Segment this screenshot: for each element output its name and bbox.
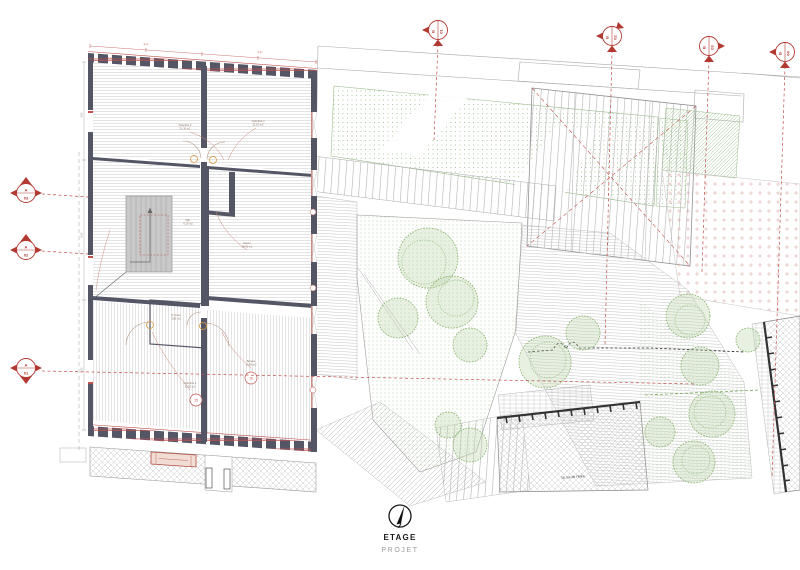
tree: [566, 316, 600, 350]
svg-text:01: 01: [439, 29, 444, 34]
svg-text:B: B: [778, 52, 783, 55]
room-tag: 15: [194, 399, 198, 403]
skylight: [151, 452, 196, 467]
tree: [378, 298, 418, 338]
section-marker-b03: B 03: [700, 37, 726, 63]
svg-text:03: 03: [24, 196, 29, 201]
svg-text:21,30 m2: 21,30 m2: [180, 127, 191, 131]
room-floor-ch2: [92, 62, 200, 163]
chimney: [224, 469, 230, 489]
section-marker-a03: A 03: [10, 177, 42, 203]
annex-building: [90, 447, 316, 492]
svg-text:19,90 m2: 19,90 m2: [246, 363, 257, 367]
room-label: Chambre 3: [252, 119, 265, 123]
room-label: Chambre 2: [179, 123, 192, 127]
site-plan: 16 rue de l'Italie: [311, 46, 800, 506]
section-marker-b04: B 04: [769, 43, 795, 69]
tree: [426, 276, 478, 328]
svg-text:01: 01: [24, 371, 29, 376]
room-label: Dgt.: [186, 218, 191, 222]
svg-text:B: B: [605, 36, 610, 39]
neighbor-green-strip: [662, 108, 740, 178]
room-tag: 16: [249, 377, 253, 381]
svg-text:B: B: [702, 46, 707, 49]
north-arrow-icon: [389, 505, 411, 528]
tree: [681, 347, 719, 385]
svg-text:B: B: [431, 30, 436, 33]
tree: [666, 294, 710, 338]
section-marker-a01: A 01: [10, 359, 42, 385]
plan-canvas: 16 rue de l'Italie: [0, 0, 800, 570]
tree: [645, 417, 675, 447]
drawing-sheet: 16 rue de l'Italie: [0, 0, 800, 570]
utility-box: [60, 448, 86, 462]
wall-center: [201, 66, 207, 442]
tree: [519, 336, 571, 388]
sheet-phase-label: PROJET: [381, 547, 418, 554]
svg-text:03: 03: [710, 45, 715, 50]
svg-text:5,37: 5,37: [257, 51, 263, 54]
svg-text:A: A: [25, 245, 28, 250]
chimney: [206, 468, 212, 488]
room-label: Sejour: [243, 241, 251, 245]
room-label: Chambre 1: [184, 381, 197, 385]
svg-text:5,44: 5,44: [143, 43, 149, 46]
tree: [453, 328, 487, 362]
svg-text:20,15 m2: 20,15 m2: [185, 385, 196, 389]
floor-plan: Chambre 2 21,30 m2 Chambre 3 21,10 m2 Se…: [60, 43, 317, 492]
svg-text:A: A: [25, 363, 28, 368]
tree: [736, 328, 760, 352]
terrace-left-band: [316, 196, 357, 380]
section-marker-b01: B 01: [422, 21, 448, 47]
sheet-level-label: ETAGE: [384, 533, 417, 542]
room-label: S. d'eau: [171, 313, 181, 317]
room-label: Bureau: [247, 359, 256, 363]
svg-text:3,85 m2: 3,85 m2: [171, 317, 181, 321]
svg-text:6,50: 6,50: [81, 232, 84, 237]
svg-text:0,90: 0,90: [227, 66, 233, 69]
svg-text:21,10 m2: 21,10 m2: [253, 123, 264, 127]
tree: [435, 412, 461, 438]
svg-text:28,45 m2: 28,45 m2: [242, 245, 253, 249]
svg-text:4,90: 4,90: [81, 112, 84, 117]
svg-text:02: 02: [613, 35, 618, 40]
svg-text:2,28: 2,28: [107, 57, 113, 60]
tree: [689, 391, 735, 437]
title-block: ETAGE PROJET: [381, 505, 418, 554]
tree: [673, 441, 715, 483]
svg-text:04: 04: [786, 51, 791, 56]
neighbor-building-bottom: 16 rue de l'Italie: [497, 402, 648, 492]
svg-text:A: A: [25, 188, 28, 193]
svg-text:02: 02: [24, 253, 29, 258]
svg-text:6,10 m2: 6,10 m2: [183, 222, 193, 226]
room-floor-sejour: [207, 169, 313, 305]
section-marker-b02: B 02: [596, 22, 624, 52]
section-marker-a02: A 02: [10, 234, 42, 260]
